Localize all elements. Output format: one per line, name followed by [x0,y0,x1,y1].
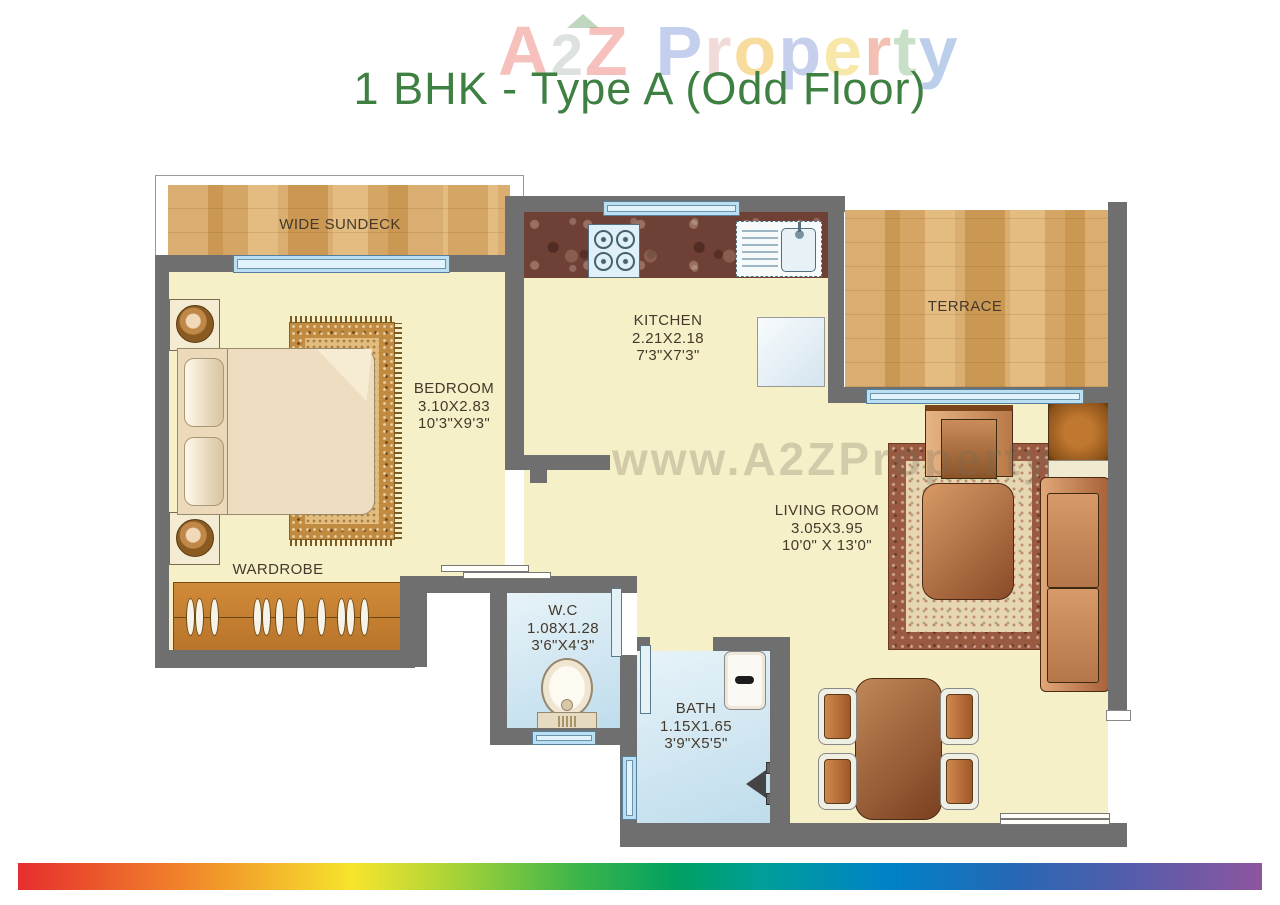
shutter-leaf-icon [296,598,305,636]
bedroom-sliding-door [463,572,551,579]
rug-fringe [290,316,394,323]
wc-door [611,588,622,657]
window [622,756,637,820]
bedroom-sliding-door [441,565,529,572]
wall [490,578,507,745]
shutter-leaf-icon [360,598,369,636]
coffee-table [922,483,1014,600]
wall [505,455,610,470]
shutter-leaf-icon [186,598,195,636]
shutter-leaf-icon [337,598,346,636]
fridge [757,317,825,387]
wc-label: W.C 1.08X1.28 3'6"X4'3" [527,602,599,655]
bath-label: BATH 1.15X1.65 3'9"X5'5" [660,700,732,753]
basin-tap-icon [735,676,754,684]
dining-chair [818,688,857,745]
room-dim-m: 3.05X3.95 [775,520,879,538]
wall [530,470,547,483]
stove-icon [588,224,640,278]
room-dim-ft: 10'3"X9'3" [414,415,494,433]
room-name: W.C [527,602,599,620]
chair-cushion [946,759,973,804]
burner-icon [594,230,613,249]
flush-dot [561,699,573,711]
room-name: KITCHEN [632,312,704,330]
room-name: WARDROBE [233,561,324,579]
window [603,201,740,216]
wardrobe [173,582,402,652]
tank-grill [558,716,576,727]
room-dim-ft: 3'9"X5'5" [660,735,732,753]
tap-stem [798,222,801,232]
dining-chair [818,753,857,810]
kitchen-sink-icon [736,221,822,277]
sundeck-label: WIDE SUNDECK [279,216,400,234]
sofa-cushion [1047,588,1099,683]
wall [713,637,777,651]
bath-door [640,645,651,714]
shutter-leaf-icon [317,598,326,636]
shutter-leaf-icon [275,598,284,636]
wall [1108,202,1127,718]
dining-table [855,678,942,820]
duct-notch [427,593,490,745]
entrance-sliding-door [1000,819,1110,825]
rug-fringe [290,539,394,546]
center-watermark: www.A2ZProperty [612,436,1051,482]
room-name: LIVING ROOM [775,502,879,520]
burner-icon [594,252,613,271]
rug-fringe [394,323,402,539]
toilet-icon [541,658,593,718]
rainbow-bar [18,863,1262,890]
kitchen-label: KITCHEN 2.21X2.18 7'3"X7'3" [632,312,704,365]
house-icon [567,14,599,28]
room-name: BEDROOM [414,380,494,398]
burner-icon [616,252,635,271]
sofa [1040,477,1110,692]
dining-chair [940,688,979,745]
chair-cushion [824,759,851,804]
wall [770,637,790,826]
wall [155,255,169,668]
table-lamp [176,519,214,557]
room-name: BATH [660,700,732,718]
room-dim-m: 1.08X1.28 [527,620,599,638]
wall [155,650,415,668]
shutter-leaf-icon [210,598,219,636]
room-dim-m: 3.10X2.83 [414,398,494,416]
pillow [184,358,224,427]
shutter-leaf-icon [253,598,262,636]
wall [505,196,524,460]
burner-icon [616,230,635,249]
sofa-cushion [1047,493,1099,588]
pillow [184,437,224,506]
door-jamb [1106,710,1131,721]
room-dim-ft: 3'6"X4'3" [527,637,599,655]
living-room-label: LIVING ROOM 3.05X3.95 10'0" X 13'0" [775,502,879,555]
window [532,731,596,745]
chair-cushion [946,694,973,739]
window [233,255,450,273]
corner-table [1048,402,1110,462]
room-dim-ft: 7'3"X7'3" [632,347,704,365]
window [866,389,1084,404]
page-title: 1 BHK - Type A (Odd Floor) [0,64,1280,114]
drainboard [742,230,778,268]
shutter-leaf-icon [262,598,271,636]
dining-chair [940,753,979,810]
room-name: TERRACE [928,298,1002,316]
terrace-label: TERRACE [928,298,1002,316]
room-dim-m: 1.15X1.65 [660,718,732,736]
room-name: WIDE SUNDECK [279,216,400,234]
wall [620,823,1127,847]
shutter-leaf-icon [346,598,355,636]
shutter-leaf-icon [195,598,204,636]
floor-plan-page: A2ZProperty 1 BHK - Type A (Odd Floor) w… [0,0,1280,905]
wall [620,576,637,592]
wall [828,200,844,403]
table-lamp [176,305,214,343]
chair-cushion [824,694,851,739]
wardrobe-label: WARDROBE [233,561,324,579]
bedroom-label: BEDROOM 3.10X2.83 10'3"X9'3" [414,380,494,433]
room-dim-ft: 10'0" X 13'0" [775,537,879,555]
room-dim-m: 2.21X2.18 [632,330,704,348]
